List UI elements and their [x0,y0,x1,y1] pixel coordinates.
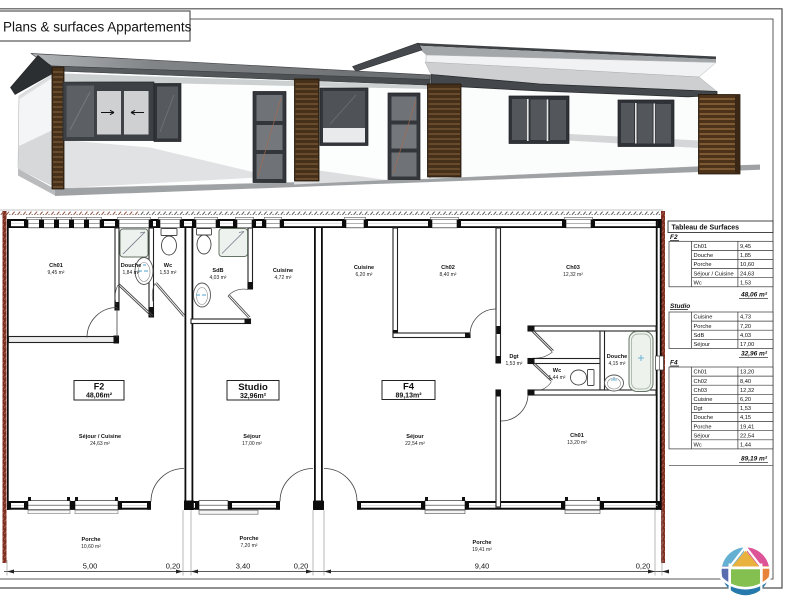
svg-text:Cuisine: Cuisine [354,265,374,271]
svg-text:Porche: Porche [82,537,101,543]
svg-text:4,03: 4,03 [740,333,751,339]
svg-text:1,44: 1,44 [740,443,751,449]
svg-text:Ch01: Ch01 [49,263,63,269]
svg-text:Cuisine: Cuisine [694,315,713,321]
svg-text:Wc: Wc [553,368,561,374]
svg-text:1,53 m²: 1,53 m² [160,270,177,276]
svg-text:Douche: Douche [607,354,628,360]
svg-text:F2: F2 [670,234,678,241]
svg-text:6,20 m²: 6,20 m² [356,272,373,278]
svg-text:9,45: 9,45 [740,244,751,250]
svg-text:10,60 m²: 10,60 m² [81,544,101,550]
svg-text:Ch03: Ch03 [566,265,580,271]
svg-text:Wc: Wc [694,443,702,449]
svg-text:SdB: SdB [212,268,223,274]
svg-text:Séjour: Séjour [694,433,711,439]
svg-text:8,40: 8,40 [740,379,751,385]
svg-text:13,20 m²: 13,20 m² [567,440,587,446]
svg-text:Ch03: Ch03 [694,388,708,394]
svg-text:Studio: Studio [238,382,268,393]
svg-text:19,41: 19,41 [740,424,754,430]
svg-text:0,20: 0,20 [636,562,651,571]
svg-text:Ch01: Ch01 [694,370,708,376]
svg-text:F4: F4 [403,382,415,393]
svg-text:Douche: Douche [694,253,714,259]
svg-text:F4: F4 [670,360,678,367]
svg-text:0,20: 0,20 [294,562,309,571]
svg-text:32,96 m²: 32,96 m² [741,351,768,358]
svg-text:Dgt: Dgt [694,406,703,412]
svg-text:19,41 m²: 19,41 m² [472,547,492,553]
svg-text:9,40: 9,40 [475,562,490,571]
svg-text:0,20: 0,20 [166,562,181,571]
svg-text:Séjour: Séjour [406,434,424,440]
svg-text:Porche: Porche [694,262,712,268]
svg-text:3,40: 3,40 [236,562,251,571]
svg-text:22,54 m²: 22,54 m² [405,441,425,447]
svg-text:1,85: 1,85 [740,253,751,259]
svg-text:1,53 m²: 1,53 m² [506,361,523,367]
svg-text:4,15: 4,15 [740,415,751,421]
svg-text:Séjour / Cuisine: Séjour / Cuisine [79,434,121,440]
svg-text:4,15 m²: 4,15 m² [609,361,626,367]
svg-text:9,45 m²: 9,45 m² [48,270,65,276]
svg-text:Porche: Porche [694,424,712,430]
svg-text:Plans & surfaces Appartements: Plans & surfaces Appartements [3,20,192,35]
svg-text:Séjour: Séjour [694,342,711,348]
svg-text:1,44 m²: 1,44 m² [549,375,566,381]
svg-text:4,72 m²: 4,72 m² [275,275,292,281]
svg-text:Douche: Douche [121,263,142,269]
svg-text:6,20: 6,20 [740,397,751,403]
svg-text:1,53: 1,53 [740,280,751,286]
svg-text:Porche: Porche [473,540,492,546]
svg-text:13,20: 13,20 [740,370,754,376]
svg-text:8,40 m²: 8,40 m² [440,272,457,278]
svg-text:Wc: Wc [164,263,172,269]
svg-text:4,03 m²: 4,03 m² [210,275,227,281]
svg-text:Wc: Wc [694,280,702,286]
svg-text:32,96m²: 32,96m² [240,393,267,400]
svg-text:Dgt: Dgt [509,354,518,360]
svg-text:24,63: 24,63 [740,271,754,277]
svg-text:5,00: 5,00 [83,562,98,571]
svg-text:SdB: SdB [694,333,705,339]
svg-text:22,54: 22,54 [740,433,754,439]
svg-text:1,53: 1,53 [740,406,751,412]
svg-text:89,13m²: 89,13m² [395,393,422,400]
svg-text:Séjour / Cuisine: Séjour / Cuisine [694,271,734,277]
svg-text:17,00 m²: 17,00 m² [242,441,262,447]
svg-text:Tableau de Surfaces: Tableau de Surfaces [672,225,740,232]
svg-text:Douche: Douche [694,415,714,421]
svg-text:89,19 m²: 89,19 m² [741,456,768,463]
svg-text:Séjour: Séjour [243,434,261,440]
svg-text:F2: F2 [94,382,105,392]
svg-text:Studio: Studio [670,303,690,310]
svg-text:12,32 m²: 12,32 m² [563,272,583,278]
svg-text:Porche: Porche [240,536,259,542]
svg-text:Ch02: Ch02 [694,379,708,385]
svg-text:Porche: Porche [694,324,712,330]
svg-text:1,84 m²: 1,84 m² [123,270,140,276]
svg-text:Ch01: Ch01 [570,433,584,439]
svg-text:48,06m²: 48,06m² [86,393,113,400]
svg-text:17,00: 17,00 [740,342,754,348]
svg-text:24,63 m²: 24,63 m² [90,441,110,447]
svg-text:4,73: 4,73 [740,315,751,321]
svg-text:7,20: 7,20 [740,324,751,330]
svg-text:Cuisine: Cuisine [273,268,293,274]
svg-text:Cuisine: Cuisine [694,397,713,403]
svg-text:7,20 m²: 7,20 m² [241,543,258,549]
svg-text:12,32: 12,32 [740,388,754,394]
svg-text:Ch02: Ch02 [441,265,455,271]
svg-text:Ch01: Ch01 [694,244,708,250]
svg-text:48,06 m²: 48,06 m² [740,292,768,299]
svg-text:10,60: 10,60 [740,262,754,268]
